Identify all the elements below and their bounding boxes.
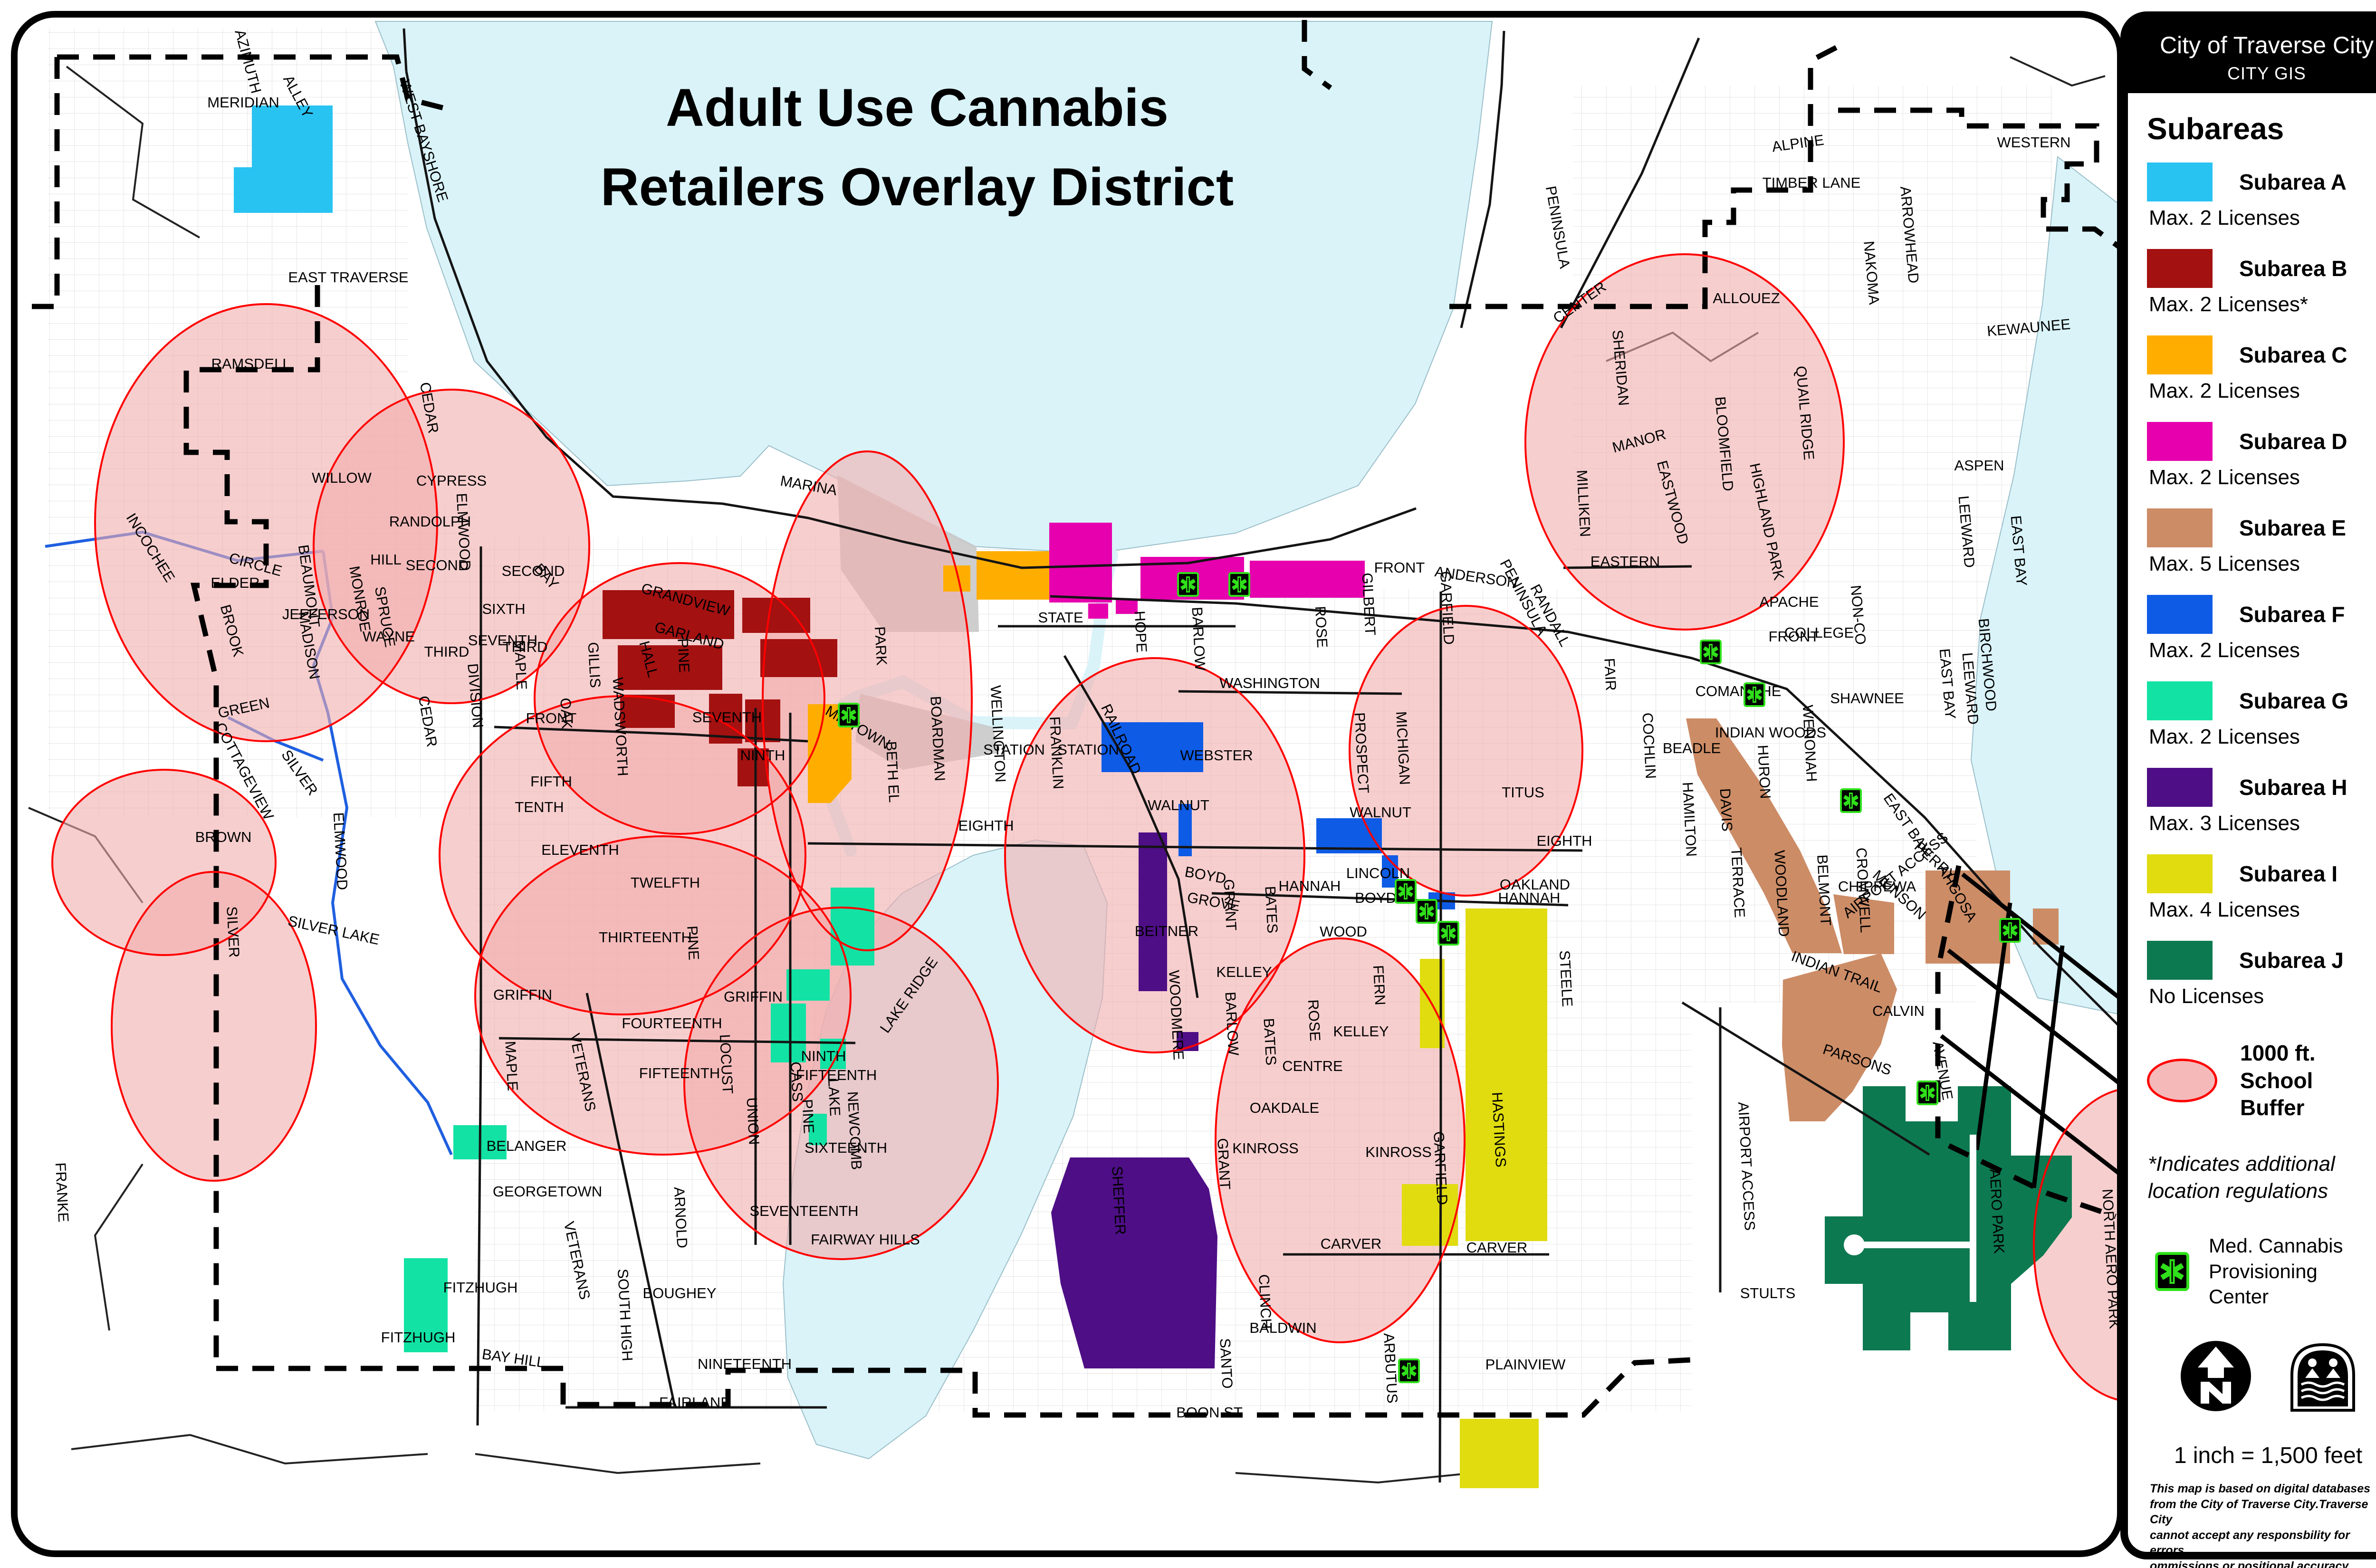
provisioning-center-icon	[1399, 1359, 1419, 1382]
street-label: PINE	[684, 925, 702, 960]
legend-logos	[2147, 1338, 2376, 1414]
street-label: SANTO	[1217, 1338, 1236, 1389]
subarea-H-zone	[1139, 832, 1167, 991]
street-label: FITZHUGH	[381, 1329, 456, 1346]
street-label: GRIFFIN	[724, 988, 783, 1005]
subarea-D-swatch	[2147, 422, 2213, 461]
subarea-G-label: Subarea G	[2239, 688, 2348, 714]
north-arrow-icon	[2178, 1338, 2254, 1414]
street-label: NINTH	[740, 747, 786, 764]
legend-item-school-buffer: 1000 ft.SchoolBuffer	[2147, 1040, 2376, 1122]
subarea-A-label: Subarea A	[2239, 169, 2347, 195]
street-label: CASS	[787, 1061, 806, 1102]
subarea-G-swatch	[2147, 681, 2213, 720]
street-label: BROWN	[195, 829, 252, 845]
street-label: SILVER	[223, 906, 243, 958]
subarea-H-label: Subarea H	[2239, 774, 2347, 800]
street-label: LAKE	[825, 1078, 843, 1117]
provisioning-center-label: Med. CannabisProvisioningCenter	[2209, 1233, 2343, 1310]
subarea-B-swatch	[2147, 249, 2213, 288]
street-label: CYPRESS	[416, 472, 487, 489]
street-label: ROSE	[1312, 606, 1331, 649]
subarea-I-label: Subarea I	[2239, 861, 2338, 887]
street-label: APACHE	[1759, 593, 1819, 610]
legend-body: Subareas Subarea AMax. 2 LicensesSubarea…	[2128, 93, 2376, 1568]
street-label: FERN	[1370, 965, 1389, 1005]
school-buffer-swatch	[2147, 1059, 2217, 1102]
provisioning-center-icon	[1417, 900, 1437, 923]
subarea-J-swatch	[2147, 941, 2213, 980]
street-label: SECOND	[502, 563, 565, 579]
street-label: MERIDIAN	[207, 94, 279, 111]
street-label: RANDOLPH	[389, 513, 471, 530]
provisioning-center-icon	[2000, 919, 2020, 942]
street-label: BARLOW	[1222, 991, 1242, 1056]
subarea-H-swatch	[2147, 768, 2213, 807]
map-canvas: AZIMUTHALLEYMERIDIANWEST BAYSHOREEAST TR…	[0, 0, 2376, 1568]
school-buffer-label: 1000 ft.SchoolBuffer	[2240, 1040, 2316, 1122]
legend-item-G: Subarea GMax. 2 Licenses	[2147, 681, 2376, 749]
map-title-line2: Retailers Overlay District	[601, 157, 1234, 217]
subarea-D-note: Max. 2 Licenses	[2149, 466, 2376, 489]
street-label: NINETEENTH	[698, 1356, 792, 1372]
street-label: PLAINVIEW	[1485, 1356, 1566, 1373]
street-label: THIRTEENTH	[599, 929, 692, 946]
street-label: FOURTEENTH	[622, 1015, 722, 1032]
street-label: CALVIN	[1872, 1003, 1925, 1019]
street-label: UNION	[743, 1097, 762, 1146]
street-label: BOYD	[1355, 889, 1397, 906]
street-label: EAST TRAVERSE	[288, 269, 408, 286]
subarea-B-zone	[742, 598, 810, 633]
street-label: MILLIKEN	[1573, 469, 1593, 537]
legend-item-D: Subarea DMax. 2 Licenses	[2147, 422, 2376, 489]
street-label: FIFTEENTH	[639, 1065, 720, 1081]
street-label: TIMBER LANE	[1763, 174, 1861, 191]
street-label: MAPLE	[511, 640, 530, 690]
street-label: BATES	[1260, 1018, 1279, 1066]
legend-item-H: Subarea HMax. 3 Licenses	[2147, 768, 2376, 835]
subarea-I-zone	[1460, 1419, 1539, 1488]
street-label: DAVIS	[1717, 788, 1736, 832]
street-label: FAIRLANE	[659, 1394, 730, 1411]
street-label: THIRD	[424, 643, 469, 660]
provisioning-center-icon	[1438, 922, 1458, 945]
street-label: HANNAH	[1279, 878, 1341, 894]
street-label: BOON ST	[1176, 1404, 1243, 1421]
subarea-F-note: Max. 2 Licenses	[2149, 639, 2376, 662]
city-map: AZIMUTHALLEYMERIDIANWEST BAYSHOREEAST TR…	[0, 0, 2376, 1568]
school-buffer	[1350, 606, 1582, 896]
map-author-subtitle: CITY GIS	[2132, 64, 2376, 84]
street-label: KINROSS	[1232, 1140, 1299, 1157]
subarea-A-swatch	[2147, 163, 2213, 201]
street-label: ELEVENTH	[541, 841, 619, 858]
street-label: PARK	[872, 626, 890, 666]
provisioning-center-icon	[1917, 1081, 1937, 1104]
legend-header: City of Traverse City CITY GIS	[2128, 19, 2376, 93]
street-label: GRIFFIN	[493, 986, 552, 1003]
street-label: COLLEGE	[1784, 624, 1854, 641]
map-title-line1: Adult Use Cannabis	[666, 78, 1169, 137]
provisioning-center-icon	[2155, 1252, 2190, 1291]
legend-item-I: Subarea IMax. 4 Licenses	[2147, 854, 2376, 922]
street-label: BEADLE	[1663, 740, 1721, 756]
street-label: TITUS	[1502, 784, 1544, 801]
subarea-B-note: Max. 2 Licenses*	[2149, 293, 2376, 316]
subarea-C-note: Max. 2 Licenses	[2149, 379, 2376, 403]
subarea-D-label: Subarea D	[2239, 429, 2347, 454]
street-label: EIGHTH	[958, 817, 1014, 834]
city-seal-icon	[2287, 1338, 2358, 1414]
legend-heading: Subareas	[2147, 111, 2376, 146]
street-label: BARLOW	[1188, 606, 1208, 671]
legend-item-F: Subarea FMax. 2 Licenses	[2147, 595, 2376, 662]
legend-item-A: Subarea AMax. 2 Licenses	[2147, 163, 2376, 230]
subarea-A-note: Max. 2 Licenses	[2149, 206, 2376, 230]
street-label: STATE	[1038, 609, 1083, 626]
subarea-D-zone	[1088, 603, 1108, 619]
provisioning-center-icon	[1744, 683, 1764, 706]
street-label: SEVENTH	[692, 709, 762, 726]
subarea-I-note: Max. 4 Licenses	[2149, 898, 2376, 922]
street-label: BATES	[1262, 886, 1281, 934]
street-label: FRONT	[1374, 559, 1425, 576]
legend-footnote: *Indicates additionallocation regulation…	[2148, 1150, 2376, 1205]
street-label: FAIR	[1601, 658, 1619, 691]
street-label: FAIRWAY HILLS	[811, 1231, 920, 1248]
street-label: STATION	[1057, 741, 1119, 758]
street-label: BELANGER	[487, 1138, 567, 1154]
subarea-I-swatch	[2147, 854, 2213, 893]
street-label: GILLIS	[584, 641, 604, 688]
street-label: GRANT	[1214, 1138, 1234, 1190]
street-label: ELDER	[211, 574, 259, 591]
street-label: TENTH	[515, 799, 564, 815]
street-label: HILL	[370, 551, 401, 568]
map-layers: AZIMUTHALLEYMERIDIANWEST BAYSHOREEAST TR…	[14, 14, 2233, 1554]
subarea-H-note: Max. 3 Licenses	[2149, 812, 2376, 835]
provisioning-center-icon	[1701, 641, 1721, 663]
street-label: NINTH	[801, 1048, 846, 1064]
cul-de-sac	[1844, 1234, 1865, 1255]
provisioning-center-icon	[1178, 573, 1198, 596]
legend-items: Subarea AMax. 2 LicensesSubarea BMax. 2 …	[2147, 163, 2376, 1027]
provisioning-center-icon	[1841, 789, 1861, 812]
street-label: SECOND	[406, 557, 469, 574]
street-label: RAMSDELL	[211, 355, 290, 372]
street-label: CENTRE	[1282, 1058, 1342, 1074]
disclaimer: This map is based on digital databasesfr…	[2150, 1481, 2376, 1568]
street-label: STATION	[983, 741, 1045, 758]
street-label: WASHINGTON	[1219, 675, 1320, 691]
legend-panel: City of Traverse City CITY GIS Subareas …	[2120, 11, 2376, 1559]
street-label: GILBERT	[1359, 573, 1379, 636]
subarea-E-label: Subarea E	[2239, 515, 2346, 541]
street-label: ALLOUEZ	[1713, 290, 1780, 306]
provisioning-center-icon	[1396, 880, 1416, 903]
street-label: PINE	[799, 1099, 817, 1134]
street-label: KELLEY	[1333, 1023, 1389, 1040]
street-label: WILLOW	[312, 469, 372, 486]
street-label: HANNAH	[1498, 889, 1561, 906]
street-label: OAK	[557, 698, 575, 730]
street-label: FIFTH	[530, 773, 572, 790]
subarea-G-zone	[831, 888, 874, 966]
street-label: KELLEY	[1216, 964, 1272, 980]
street-label: FRANKE	[52, 1162, 72, 1223]
legend-item-C: Subarea CMax. 2 Licenses	[2147, 335, 2376, 403]
subarea-J-note: No Licenses	[2149, 985, 2376, 1008]
provisioning-center-icon	[1229, 573, 1249, 596]
street-label: ARNOLD	[671, 1186, 691, 1249]
street-label: LOCUST	[717, 1034, 737, 1094]
subarea-H-zone	[1051, 1157, 1217, 1368]
subarea-B-zone	[760, 639, 837, 677]
street-label: STEELE	[1556, 950, 1576, 1007]
legend-item-J: Subarea JNo Licenses	[2147, 941, 2376, 1008]
street-label: KINROSS	[1365, 1144, 1432, 1160]
map-author-title: City of Traverse City	[2132, 31, 2376, 59]
street-label: LINCOLN	[1346, 865, 1410, 881]
street-label: CARVER	[1466, 1239, 1528, 1256]
street-label: STULTS	[1740, 1285, 1796, 1301]
street-label: SIXTEENTH	[805, 1139, 887, 1156]
provisioning-center-icon	[839, 704, 859, 727]
street-label: COCHLIN	[1639, 712, 1659, 779]
legend-item-E: Subarea EMax. 5 Licenses	[2147, 508, 2376, 576]
street-label: EASTERN	[1590, 553, 1660, 570]
subarea-B-label: Subarea B	[2239, 256, 2347, 281]
street-label: FITZHUGH	[443, 1279, 518, 1296]
subarea-F-label: Subarea F	[2239, 602, 2345, 627]
street-label: WALNUT	[1350, 804, 1411, 821]
street-label: ASPEN	[1954, 457, 2004, 474]
legend-item-provisioning-center: Med. CannabisProvisioningCenter	[2155, 1233, 2376, 1310]
subarea-C-label: Subarea C	[2239, 342, 2347, 368]
scale-text: 1 inch = 1,500 feet	[2147, 1443, 2376, 1469]
main-road	[1440, 592, 1441, 1482]
street-label: MAPLE	[502, 1041, 521, 1091]
subarea-G-zone	[786, 969, 830, 1001]
street-label: SIXTH	[482, 601, 525, 617]
street-label: ROSE	[1305, 999, 1324, 1042]
street-label: SHAWNEE	[1830, 690, 1904, 707]
subarea-F-swatch	[2147, 595, 2213, 634]
subarea-I-zone	[1466, 908, 1547, 1241]
street-label: SEVENTEENTH	[749, 1203, 858, 1219]
street-label: BEITNER	[1135, 923, 1198, 939]
street-label: GEORGETOWN	[493, 1183, 602, 1200]
subarea-D-zone	[1049, 523, 1112, 602]
subarea-G-note: Max. 2 Licenses	[2149, 725, 2376, 749]
street-label: BALDWIN	[1249, 1319, 1316, 1336]
street-label: OAKDALE	[1250, 1100, 1319, 1116]
street-label: GRANT	[1220, 879, 1240, 931]
street-label: WALNUT	[1148, 797, 1209, 813]
street-label: WESTERN	[1997, 134, 2071, 151]
subarea-C-zone	[977, 551, 1050, 600]
subarea-J-label: Subarea J	[2239, 947, 2344, 973]
street-label: BOUGHEY	[642, 1285, 716, 1301]
subarea-E-note: Max. 5 Licenses	[2149, 552, 2376, 576]
street-label: COMANCHE	[1696, 683, 1782, 699]
street-label: HURON	[1754, 745, 1774, 799]
street-label: EIGHTH	[1536, 832, 1592, 849]
subarea-E-swatch	[2147, 508, 2213, 547]
subarea-B-zone	[618, 645, 722, 690]
subarea-D-zone	[1250, 561, 1365, 598]
legend-item-B: Subarea BMax. 2 Licenses*	[2147, 249, 2376, 316]
street-label: HOPE	[1131, 611, 1150, 653]
subarea-C-swatch	[2147, 335, 2213, 374]
street-label: WEBSTER	[1180, 747, 1253, 764]
street-label: TWELFTH	[631, 874, 700, 891]
street-label: WOOD	[1320, 923, 1367, 940]
street-label: CARVER	[1321, 1235, 1382, 1252]
